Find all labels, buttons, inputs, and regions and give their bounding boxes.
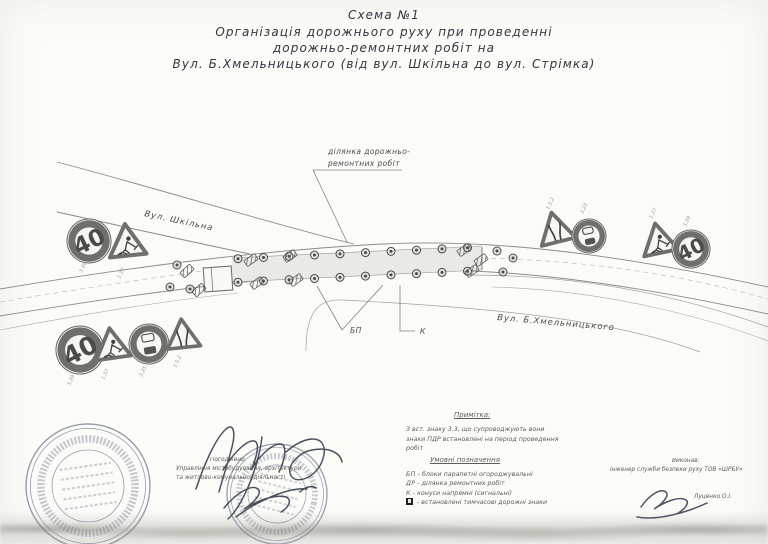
- legend-item: БП - блоки парапетні огороджувальні: [406, 470, 596, 480]
- traffic-cone: [336, 273, 344, 281]
- traffic-cone: [362, 249, 370, 257]
- barrier-board: [180, 264, 194, 278]
- sign-code-label: 3.29: [66, 374, 76, 387]
- no-overtaking-sign: [126, 321, 172, 367]
- traffic-cone: [413, 270, 421, 278]
- title-line-2: Організація дорожнього руху при проведен…: [74, 24, 694, 40]
- sign-code-label: 3.25: [579, 202, 589, 215]
- approval-heading: Погоджено: [210, 456, 316, 465]
- road-lane-line-right-2: [492, 287, 768, 341]
- scanned-traffic-scheme-page: ділянка дорожньо- ремонтних робіт Вул. Ш…: [0, 0, 768, 544]
- curb-outline: [306, 300, 700, 352]
- label-leader-line: [313, 170, 347, 242]
- traffic-cone: [362, 272, 370, 280]
- scheme-number: Схема №1: [74, 7, 694, 23]
- executor-name: Луценко О.І.: [694, 493, 760, 502]
- sign-code-label: 1.5.2: [545, 197, 556, 211]
- title-block: Схема №1 Організація дорожнього руху при…: [74, 7, 694, 72]
- note-line: знаки ПДР встановлені на період проведен…: [406, 435, 591, 445]
- traffic-cone: [311, 275, 319, 283]
- traffic-cone: [438, 268, 446, 276]
- traffic-cone: [413, 246, 421, 254]
- sign-code-label: 1.37: [100, 367, 110, 380]
- sign-code-label: 3.29: [78, 261, 88, 274]
- street-label-shkilna: Вул. Шкільна: [143, 209, 214, 233]
- title-line-3: дорожньо-ремонтних робіт на: [74, 40, 694, 56]
- sign-code-label: 3.29: [682, 215, 692, 228]
- street-label-khmelnytskoho: Вул. Б.Хмельницького: [497, 313, 615, 333]
- temporary-sign-icon: [406, 498, 413, 505]
- note-line: робіт: [406, 444, 591, 454]
- executor-heading: Виконав:: [672, 457, 760, 466]
- road-shoulder-left: [0, 293, 238, 330]
- traffic-cone: [387, 271, 395, 279]
- road-works-sign: [107, 222, 147, 257]
- sign-code-label: 1.5.2: [172, 355, 183, 369]
- traffic-cone: [438, 245, 446, 253]
- traffic-cone: [493, 247, 501, 255]
- k-leader-line: [400, 285, 415, 331]
- road-centerline-right: [482, 258, 768, 299]
- legend-block: Умовні позначення БП - блоки парапетні о…: [406, 456, 596, 508]
- work-vehicle: [203, 266, 233, 292]
- sign-code-label: 1.37: [648, 206, 658, 219]
- traffic-cone: [234, 255, 242, 263]
- approval-center-block: Погоджено Управління містобудування, арх…: [176, 456, 316, 483]
- executor-block: Виконав: інженер служби безпеки руху ТОВ…: [610, 457, 760, 502]
- note-heading: Примітка:: [454, 411, 591, 421]
- scan-artifact-band: [0, 506, 768, 544]
- legend-item: К - конуси напрямні (сигнальні): [406, 489, 596, 499]
- bp-leader-lines: [317, 285, 383, 330]
- road-edge-bottom: [0, 270, 768, 316]
- road-narrows-sign: [534, 208, 575, 246]
- note-line: З вст. знаку 3.3, що супроводжують вони: [406, 425, 591, 435]
- marker-bp-label: БП: [350, 326, 362, 335]
- traffic-cone: [387, 247, 395, 255]
- marker-k-label: К: [420, 327, 426, 336]
- sign-code-label: 3.25: [138, 365, 148, 378]
- executor-line: інженер служби безпеки руху ТОВ «ШРБУ»: [610, 466, 760, 475]
- traffic-cone: [311, 251, 319, 259]
- approval-line: Управління містобудування, архітектури: [176, 465, 316, 474]
- legend-heading: Умовні позначення: [430, 456, 596, 466]
- traffic-cone: [509, 254, 517, 262]
- no-overtaking-sign: [569, 216, 609, 256]
- sign-code-label: 1.37: [116, 266, 126, 279]
- traffic-cone: [499, 268, 507, 276]
- traffic-cone: [260, 253, 268, 261]
- note-block: Примітка: З вст. знаку 3.3, що супроводж…: [406, 411, 591, 454]
- title-line-4: Вул. Б.Хмельницького (від вул. Шкільна д…: [74, 56, 694, 72]
- speed-limit-sign: 40: [668, 226, 713, 271]
- legend-item: ДР - ділянка ремонтних робіт: [406, 479, 596, 489]
- traffic-cone: [336, 250, 344, 258]
- work-zone-label-line2: ремонтних робіт: [327, 159, 400, 168]
- work-zone-label-line1: ділянка дорожньо-: [327, 147, 410, 156]
- traffic-cone: [166, 283, 174, 291]
- road-narrows-sign: [165, 317, 201, 349]
- traffic-cone: [234, 278, 242, 286]
- traffic-cone: [173, 261, 181, 269]
- approval-line: та житлово-комунальної діяльності: [176, 474, 316, 483]
